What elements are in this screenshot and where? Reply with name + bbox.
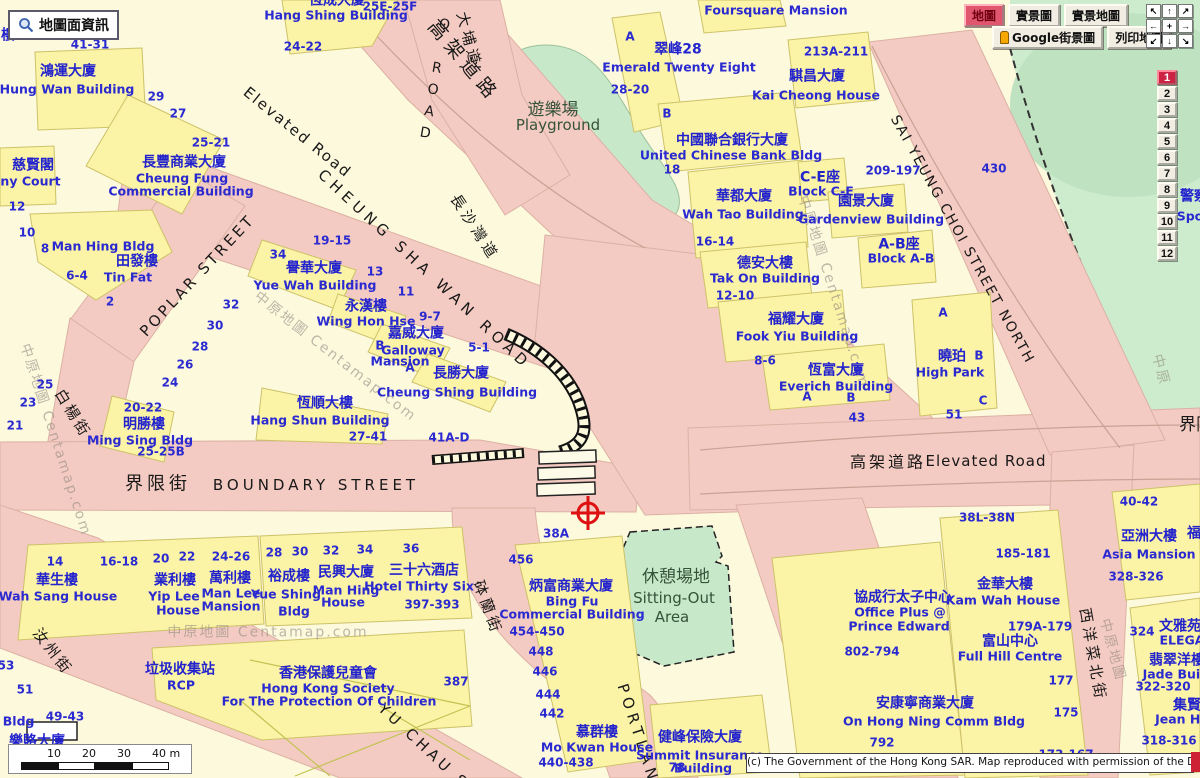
view-tab-地圖[interactable]: 地圖 (964, 4, 1004, 27)
page-button-3[interactable]: 3 (1157, 102, 1177, 117)
view-tab-實景地圖[interactable]: 實景地圖 (1064, 4, 1128, 27)
secondary-tabs: Google街景圖列印地圖 (992, 26, 1171, 49)
page-number-column: 123456789101112 (1157, 70, 1177, 261)
map-info-label: 地圖面資訊 (39, 15, 109, 35)
pan-down-left-button[interactable]: ↙ (1146, 34, 1161, 48)
copyright-text: (c) The Government of the Hong Kong SAR.… (746, 753, 1194, 773)
page-button-8[interactable]: 8 (1157, 182, 1177, 197)
scale-tick: 20 (82, 747, 96, 760)
page-button-6[interactable]: 6 (1157, 150, 1177, 165)
scale-segments (21, 762, 169, 768)
pan-up-button[interactable]: ↑ (1162, 4, 1177, 18)
pegman-icon (1000, 31, 1009, 44)
pan-right-button[interactable]: → (1178, 19, 1193, 33)
pan-down-right-button[interactable]: ↘ (1178, 34, 1193, 48)
nav-pad: ↖↑↗←+→↙↓↘ (1146, 4, 1193, 48)
secondary-tab-Google街景圖[interactable]: Google街景圖 (992, 26, 1103, 49)
pan-up-right-button[interactable]: ↗ (1178, 4, 1193, 18)
page-button-10[interactable]: 10 (1157, 214, 1177, 229)
scale-tick: 30 (117, 747, 131, 760)
scale-tick: 40 m (152, 747, 180, 760)
pan-down-button[interactable]: ↓ (1162, 34, 1177, 48)
pan-left-button[interactable]: ← (1146, 19, 1161, 33)
view-tabs: 地圖實景圖實景地圖 (964, 4, 1128, 27)
corner-red-button[interactable] (1191, 752, 1200, 772)
page-button-4[interactable]: 4 (1157, 118, 1177, 133)
page-button-5[interactable]: 5 (1157, 134, 1177, 149)
centamap-viewer: 高架道路Elevated Road大埔道O ROAD長沙灣道CHEUNG SHA… (0, 0, 1200, 778)
page-button-7[interactable]: 7 (1157, 166, 1177, 181)
page-button-1[interactable]: 1 (1157, 70, 1177, 85)
scale-tick: 10 (47, 747, 61, 760)
pan-up-left-button[interactable]: ↖ (1146, 4, 1161, 18)
page-button-12[interactable]: 12 (1157, 246, 1177, 261)
scale-bar: 10203040 m (8, 744, 192, 774)
recenter-button[interactable]: + (1162, 19, 1177, 33)
map-canvas[interactable] (0, 0, 1200, 778)
map-info-button[interactable]: 地圖面資訊 (8, 10, 119, 40)
magnifier-icon (18, 17, 34, 33)
page-button-9[interactable]: 9 (1157, 198, 1177, 213)
page-button-2[interactable]: 2 (1157, 86, 1177, 101)
scale-tick-labels: 10203040 m (9, 747, 191, 759)
view-tab-實景圖[interactable]: 實景圖 (1008, 4, 1060, 27)
page-button-11[interactable]: 11 (1157, 230, 1177, 245)
